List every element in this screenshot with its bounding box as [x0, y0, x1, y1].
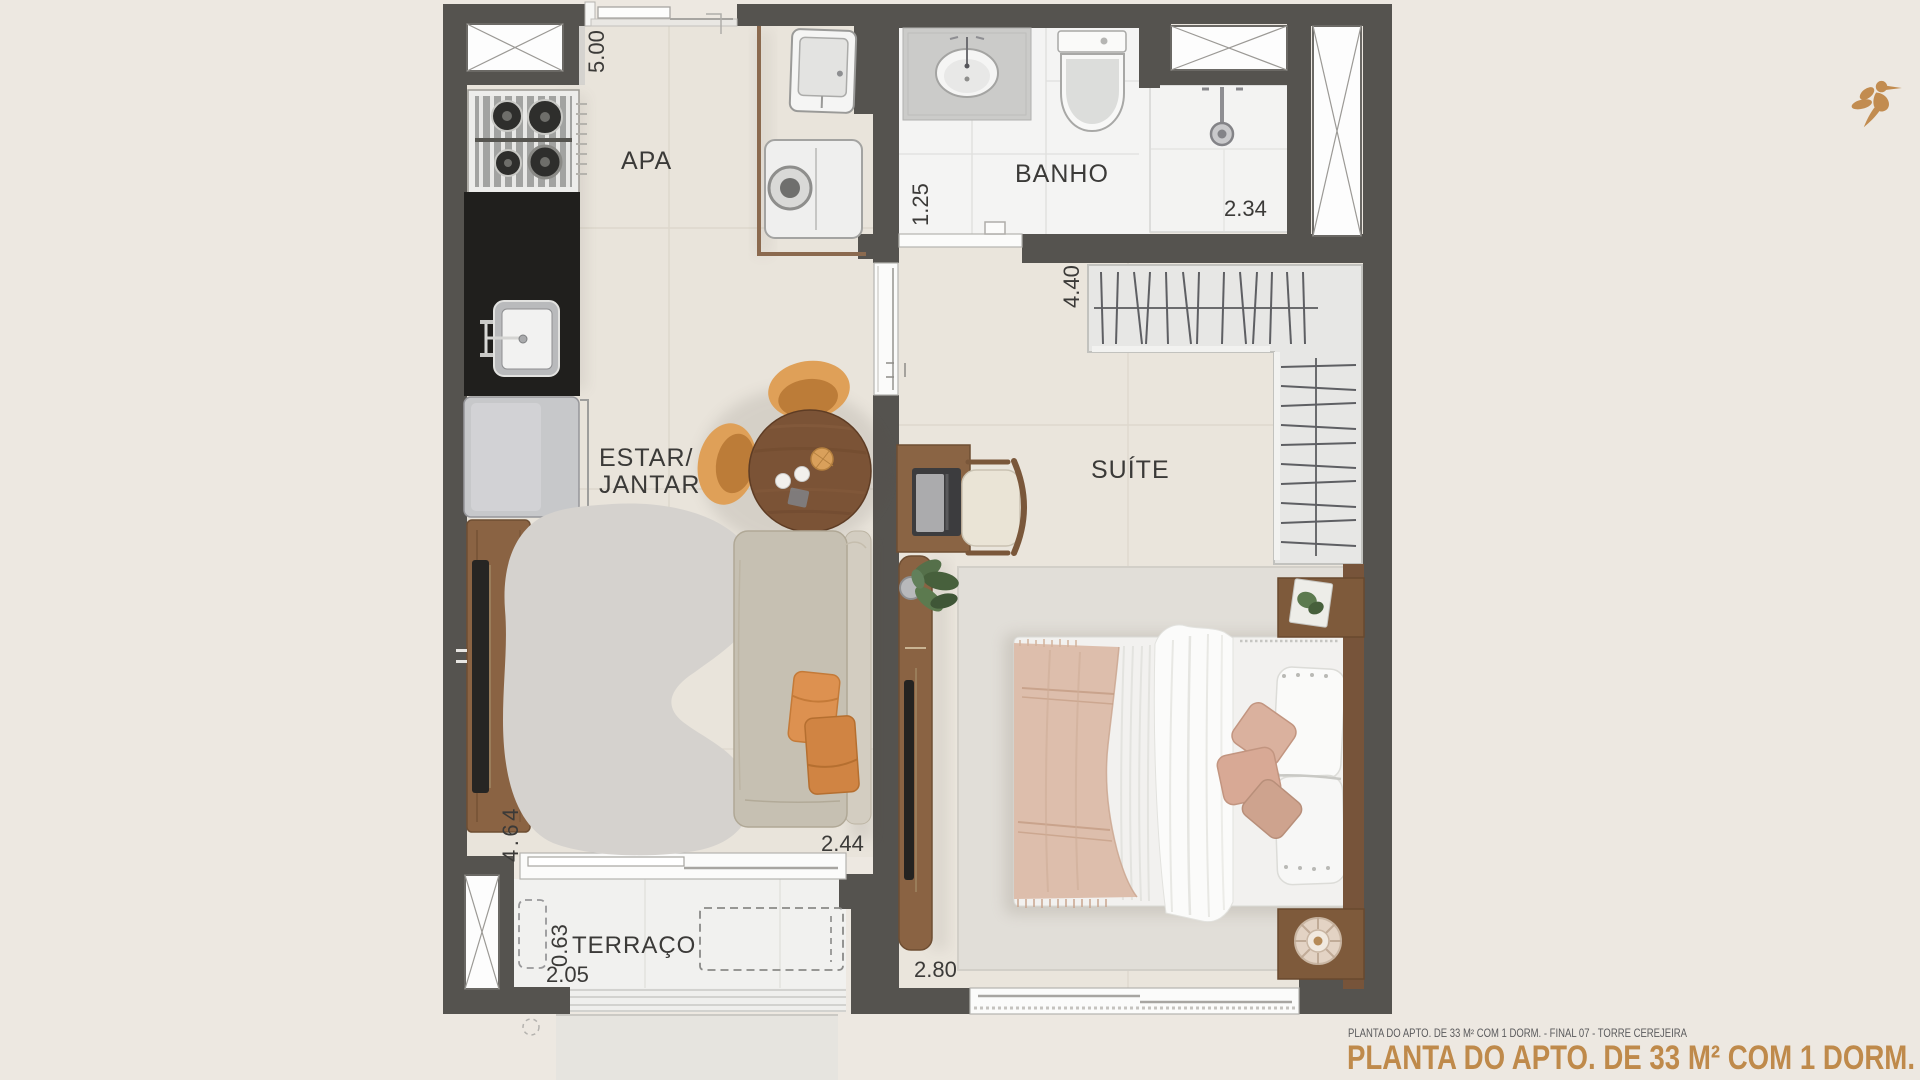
svg-text:2.80: 2.80 — [914, 957, 957, 982]
svg-text:2.44: 2.44 — [821, 831, 864, 856]
svg-text:TERRAÇO: TERRAÇO — [572, 932, 696, 959]
svg-text:2.34: 2.34 — [1224, 196, 1267, 221]
svg-text:1.25: 1.25 — [908, 183, 933, 226]
svg-text:2.05: 2.05 — [546, 962, 589, 987]
svg-text:5.00: 5.00 — [584, 30, 609, 73]
svg-text:APA: APA — [621, 147, 672, 175]
svg-text:4.64: 4.64 — [498, 805, 523, 862]
svg-text:0.63: 0.63 — [547, 924, 572, 967]
svg-text:4.40: 4.40 — [1059, 265, 1084, 308]
svg-text:BANHO: BANHO — [1015, 160, 1109, 188]
svg-text:ESTAR/: ESTAR/ — [599, 444, 693, 472]
svg-text:PLANTA DO APTO. DE 33 M² COM 1: PLANTA DO APTO. DE 33 M² COM 1 DORM. — [1347, 1039, 1915, 1077]
svg-text:SUÍTE: SUÍTE — [1091, 455, 1170, 484]
svg-text:JANTAR: JANTAR — [599, 471, 700, 499]
